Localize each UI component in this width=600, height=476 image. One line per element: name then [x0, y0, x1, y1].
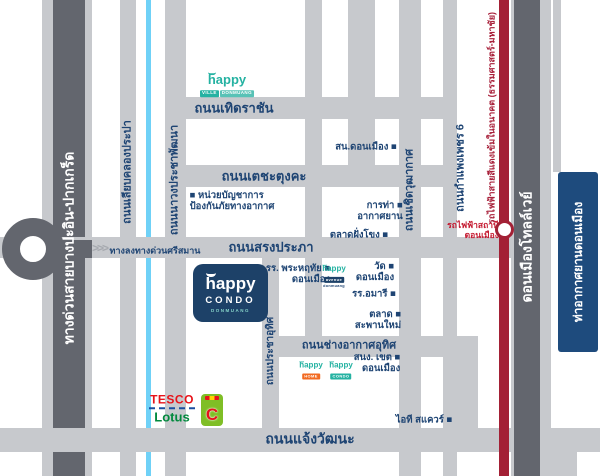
- avenue-tag: avenue: [324, 277, 344, 283]
- happy-ville-logo: happy VILLE DONMUANG: [200, 71, 254, 97]
- poi-district-office: สนง. เขต ■ ดอนเมือง: [354, 352, 401, 374]
- label-kamphaeng-phet-6: ถนนกำแพงเพชร 6: [455, 124, 468, 212]
- happy-avenue-wordmark: happy: [322, 265, 346, 274]
- poi-saphan-mai-market: ตลาด ■ สะพานใหม่: [355, 309, 401, 331]
- label-song-prapha: ถนนสรงประภา: [229, 239, 314, 254]
- label-nawong-pracha-phatthana: ถนนนาวงประชาพัฒนา: [169, 125, 182, 235]
- poi-amari-hotel: รร.อมารี ■: [352, 288, 396, 299]
- poi-air-defense-command: ■ หน่วยบัญชาการ ป้องกันภัยทางอากาศ: [190, 190, 275, 212]
- big-c-crown-icon: [205, 396, 219, 400]
- poi-redline-station: รถไฟฟ้าสถานี ดอนเมือง: [447, 220, 499, 240]
- label-cherd-wutthakat: ถนนเชิดวุฒากาศ: [404, 149, 417, 231]
- label-redline: รถไฟฟ้าสายสีแดงเข้มในอนาคต (ธรรมศาสตร์-ม…: [487, 12, 498, 224]
- big-c-letter: C: [206, 406, 218, 423]
- happy-condo-donmuang-logo: happy CONDO DONMUANG: [193, 264, 268, 322]
- happy-condo-donmuang-line: DONMUANG: [211, 308, 250, 313]
- home-tag: HOME: [302, 373, 320, 379]
- happy-home-wordmark: happy: [299, 362, 323, 371]
- road-top-b: [348, 0, 375, 187]
- poi-wat-don-mueang: วัด ■ ดอนเมือง: [356, 261, 394, 283]
- label-thoet-rachan: ถนนเทิดราชัน: [194, 100, 273, 115]
- ville-donmuang-tag: DONMUANG: [220, 90, 254, 97]
- don-mueang-location-map: >>> happy VILLE DONMUANG happy CONDO DON…: [0, 0, 600, 476]
- happy-condo-small-logo: happy CONDO: [329, 355, 353, 380]
- condo-small-tag: CONDO: [331, 373, 352, 379]
- poi-it-square: ไอที สแควร์ ■: [396, 414, 452, 425]
- happy-condo-line: CONDO: [205, 295, 255, 306]
- label-pracha-uthit: ถนนประชาอุทิศ: [265, 317, 277, 385]
- label-techa-tungkha: ถนนเตชะตุงคะ: [222, 168, 307, 183]
- label-airport: ท่าอากาศยานดอนเมือง: [571, 202, 585, 322]
- poi-phra-haruethai-school: รร. พระหฤทัย ■ ดอนเมือง: [266, 263, 330, 285]
- tesco-wordmark: TESCO: [149, 393, 195, 406]
- happy-home-logo: happy HOME: [299, 355, 323, 380]
- big-c-logo: C: [201, 394, 223, 426]
- label-ramp-exit: ทางลงทางด่วนศรีสมาน: [110, 246, 201, 257]
- road-top-a: [305, 0, 322, 357]
- expressway-loop: [2, 218, 64, 280]
- redline-station-icon: [495, 220, 514, 239]
- poi-don-mueang-police: สน.ดอนเมือง ■: [335, 141, 397, 152]
- poi-fang-khong-market: ตลาดฝั่งโขง ■: [330, 229, 388, 240]
- ramp-arrows-icon: >>>: [92, 241, 107, 255]
- happy-condo-wordmark: happy: [205, 274, 255, 294]
- ville-tag: VILLE: [200, 90, 219, 97]
- label-tollway: ดอนเมืองโทลล์เวย์: [519, 191, 536, 302]
- road-right-bottom: [551, 448, 577, 476]
- label-liap-khlong-prapa: ถนนเลียบคลองประปา: [122, 120, 135, 224]
- avenue-sub: donmuang: [322, 284, 346, 288]
- road-cherd-wutthakat: [399, 0, 421, 476]
- label-chaeng-watthana: ถนนแจ้งวัฒนะ: [265, 431, 354, 448]
- tesco-lotus-logo: TESCO Lotus: [149, 393, 195, 424]
- happy-condo-small-wordmark: happy: [329, 362, 353, 371]
- poi-airports-authority: การท่า ■ อากาศยาน: [357, 200, 403, 222]
- label-chang-akat-uthit: ถนนช่างอากาศอุทิศ: [302, 340, 396, 353]
- label-expressway: ทางด่วนสายบางปะอิน-ปากเกร็ด: [61, 152, 78, 345]
- road-right-top: [553, 0, 561, 172]
- happy-avenue-logo: happy avenue donmuang: [322, 258, 346, 288]
- lotus-wordmark: Lotus: [149, 410, 195, 424]
- happy-ville-wordmark: happy: [208, 73, 246, 87]
